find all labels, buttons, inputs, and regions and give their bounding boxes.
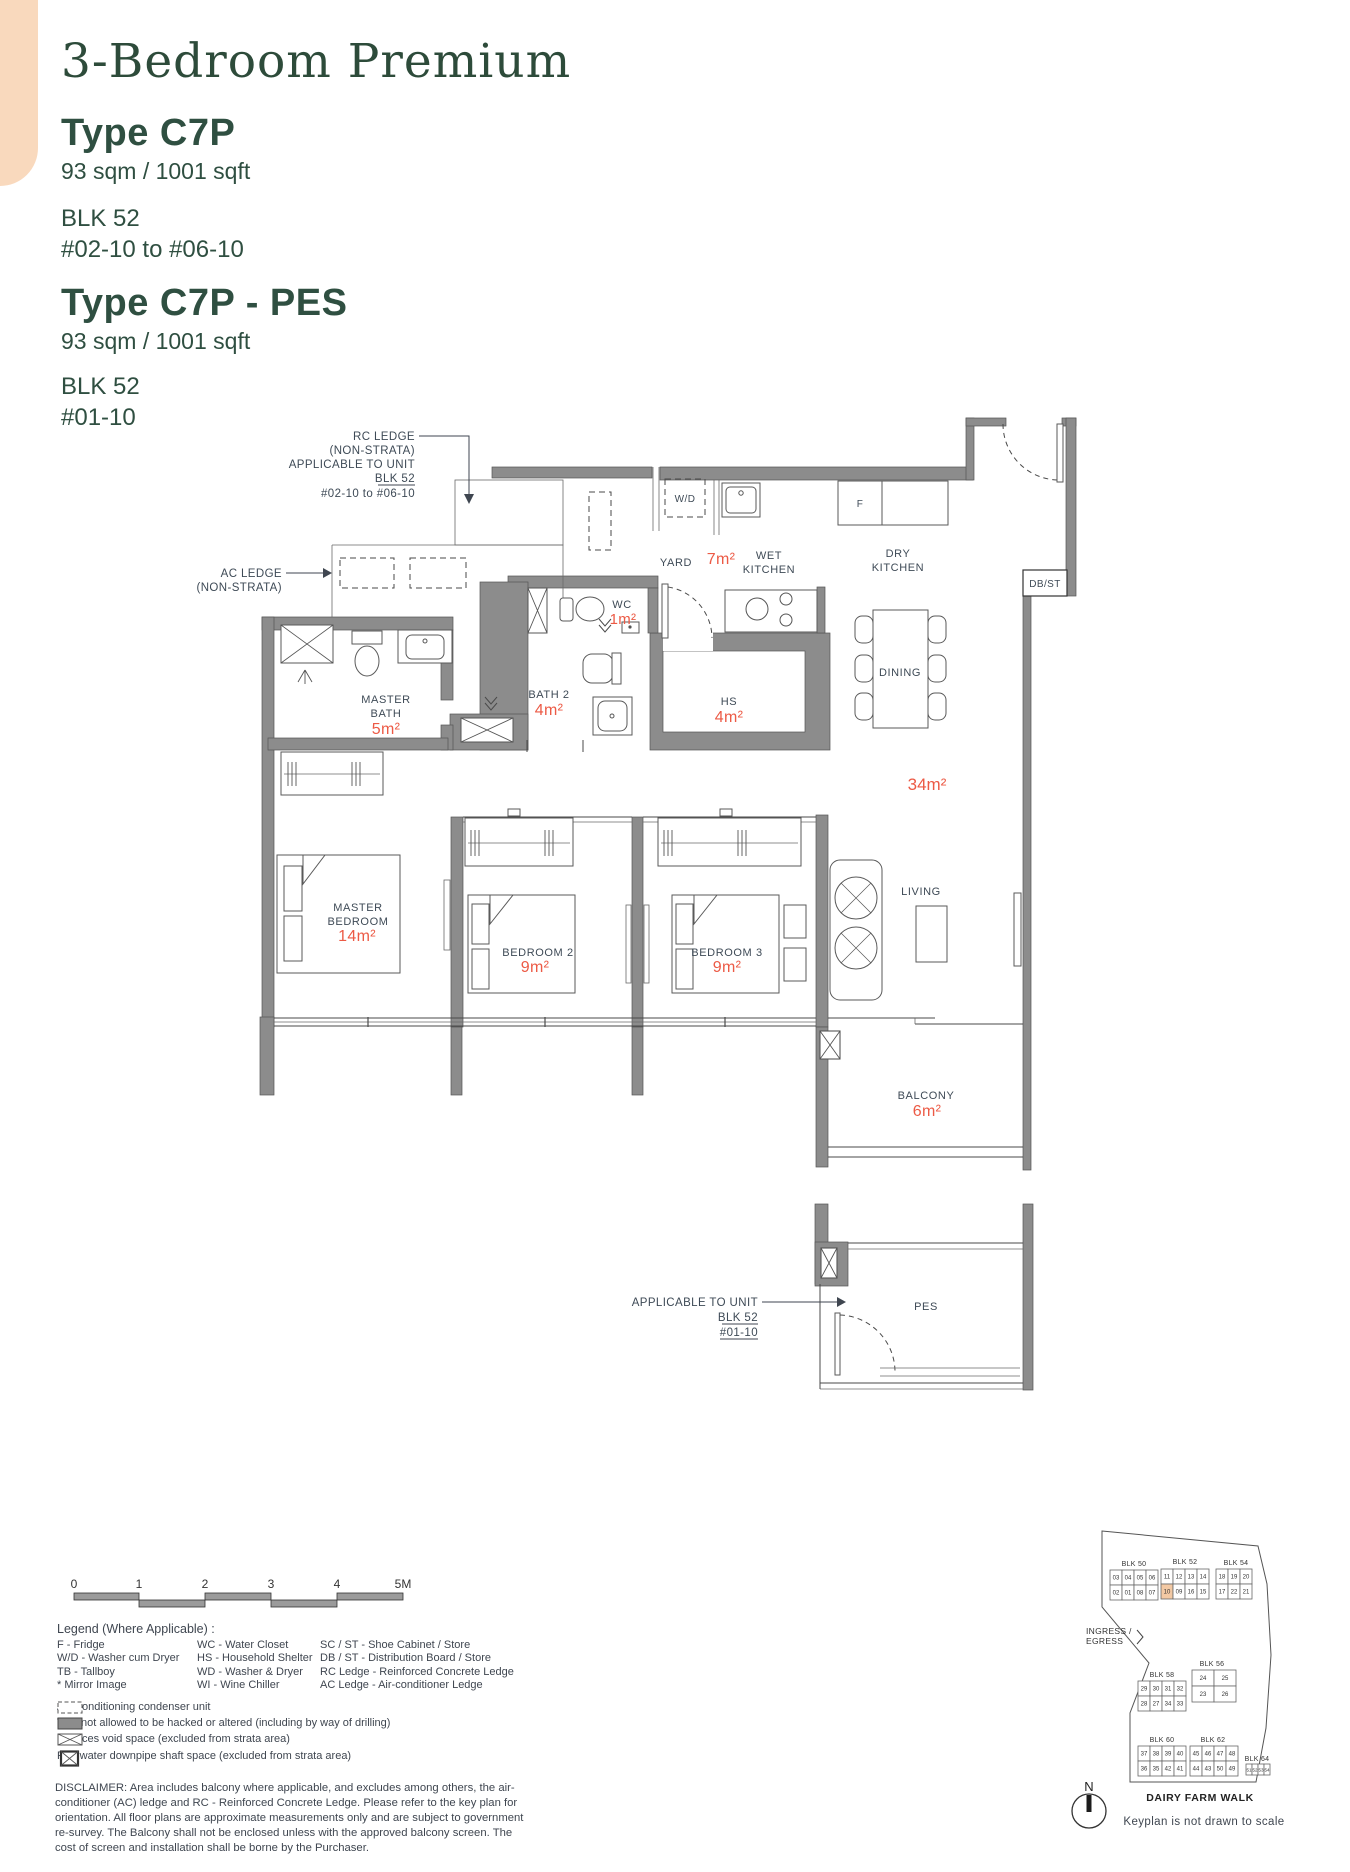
svg-text:45: 45 xyxy=(1193,1752,1200,1758)
pes-door-leaf xyxy=(835,1313,840,1375)
fridge-label: F xyxy=(857,499,864,510)
dining-chair xyxy=(928,693,946,720)
kitchen-counter xyxy=(882,481,948,525)
legend-symbol-wall: Wall not allowed to be hacked or altered… xyxy=(57,1717,390,1729)
toilet xyxy=(583,654,613,683)
toilet xyxy=(355,646,379,676)
keyplan-scale-note: Keyplan is not drawn to scale xyxy=(1123,1816,1284,1828)
svg-text:47: 47 xyxy=(1217,1752,1224,1758)
master-bedroom-label-1: MASTER xyxy=(333,902,382,914)
rainwater-shaft-icon xyxy=(57,1750,83,1767)
ac-condenser-icon xyxy=(57,1701,83,1714)
dining-chair xyxy=(855,693,873,720)
master-bath: MASTER BATH 5m² xyxy=(281,625,452,738)
svg-text:44: 44 xyxy=(1193,1767,1200,1773)
wd-label: W/D xyxy=(675,494,696,505)
master-bath-label-1: MASTER xyxy=(361,694,410,706)
dry-kitchen-label-2: KITCHEN xyxy=(872,562,924,574)
svg-text:36: 36 xyxy=(1141,1767,1148,1773)
svg-text:29: 29 xyxy=(1141,1687,1148,1693)
entry-foyer: DB/ST xyxy=(1003,424,1067,596)
svg-text:37: 37 xyxy=(1141,1752,1148,1758)
dining-chair xyxy=(855,655,873,682)
ingress-label-1: INGRESS / xyxy=(1086,1626,1132,1636)
street-label: DAIRY FARM WALK xyxy=(1146,1792,1254,1804)
ac-condenser-icon xyxy=(589,492,611,550)
ingress-label-2: EGRESS xyxy=(1086,1636,1123,1646)
dining: DINING 34m² xyxy=(855,610,947,794)
wc-label: WC xyxy=(612,599,632,611)
bedroom3-label: BEDROOM 3 xyxy=(691,947,762,959)
balcony-area: 6m² xyxy=(913,1103,942,1120)
svg-text:BLK 52: BLK 52 xyxy=(1173,1559,1198,1566)
svg-text:04: 04 xyxy=(1125,1576,1132,1582)
svg-text:(NON-STRATA): (NON-STRATA) xyxy=(196,582,282,594)
svg-text:BLK 62: BLK 62 xyxy=(1201,1737,1226,1744)
svg-text:41: 41 xyxy=(1177,1767,1184,1773)
svg-text:33: 33 xyxy=(1177,1702,1184,1708)
pillow xyxy=(284,866,302,911)
svg-text:07: 07 xyxy=(1149,1591,1156,1597)
svg-text:16: 16 xyxy=(1188,1590,1195,1596)
svg-text:4: 4 xyxy=(334,1577,341,1591)
svg-text:09: 09 xyxy=(1176,1590,1183,1596)
svg-text:52: 52 xyxy=(1252,1768,1258,1773)
svg-text:2: 2 xyxy=(202,1577,209,1591)
floorplan-drawing: DB/ST W/D YARD 7m² WET KITCHEN F xyxy=(0,0,1350,1872)
svg-text:08: 08 xyxy=(1137,1591,1144,1597)
svg-text:32: 32 xyxy=(1177,1687,1184,1693)
dining-chair xyxy=(928,616,946,643)
svg-text:02: 02 xyxy=(1113,1591,1120,1597)
svg-text:39: 39 xyxy=(1165,1752,1172,1758)
svg-text:34: 34 xyxy=(1165,1702,1172,1708)
entry-door-leaf xyxy=(1057,424,1063,482)
balcony: BALCONY 6m² xyxy=(820,1018,1023,1157)
hs-area: 4m² xyxy=(715,709,744,726)
svg-text:21: 21 xyxy=(1243,1590,1250,1596)
svg-text:15: 15 xyxy=(1200,1590,1207,1596)
coffee-table xyxy=(916,906,947,962)
svg-text:42: 42 xyxy=(1165,1767,1172,1773)
north-compass-icon: N xyxy=(1072,1779,1106,1828)
ac-condenser-icon xyxy=(410,558,466,588)
dining-chair xyxy=(855,616,873,643)
yard-area: 7m² xyxy=(707,551,736,568)
svg-text:19: 19 xyxy=(1231,1575,1238,1581)
disclaimer: DISCLAIMER: Area includes balcony where … xyxy=(55,1781,533,1856)
dry-kitchen: F DRY KITCHEN xyxy=(838,481,948,574)
bedroom2-area: 9m² xyxy=(521,959,550,976)
svg-text:26: 26 xyxy=(1222,1692,1229,1698)
bath2-area: 4m² xyxy=(535,702,564,719)
dining-chair xyxy=(928,655,946,682)
living-dining-area: 34m² xyxy=(908,775,947,794)
ac-ledge-note: AC LEDGE (NON-STRATA) xyxy=(196,568,332,594)
master-bath-area: 5m² xyxy=(372,721,401,738)
wall-icon xyxy=(57,1717,83,1730)
svg-text:49: 49 xyxy=(1229,1767,1236,1773)
svg-text:APPLICABLE TO UNIT: APPLICABLE TO UNIT xyxy=(289,459,415,471)
svg-text:22: 22 xyxy=(1231,1590,1238,1596)
wc-toilet xyxy=(576,597,604,621)
wc-toilet-tank xyxy=(560,598,573,621)
svg-text:N: N xyxy=(1084,1779,1093,1794)
dbst-label: DB/ST xyxy=(1029,579,1060,590)
tv-console xyxy=(1014,893,1021,966)
legend-column-3: SC / ST - Shoe Cabinet / Store DB / ST -… xyxy=(320,1639,514,1693)
svg-text:0: 0 xyxy=(71,1577,78,1591)
yard-wet-kitchen: W/D YARD 7m² WET KITCHEN xyxy=(660,479,817,638)
wc-room: WC 1m² xyxy=(528,588,639,633)
master-bath-label-2: BATH xyxy=(371,708,402,720)
scale-bar: 0 1 2 3 4 5M xyxy=(71,1577,412,1607)
pes: PES xyxy=(815,1204,1033,1390)
yard-label: YARD xyxy=(660,557,692,569)
svg-text:1: 1 xyxy=(136,1577,143,1591)
rc-ledge-note: RC LEDGE (NON-STRATA) APPLICABLE TO UNIT… xyxy=(289,431,474,504)
svg-text:BLK 50: BLK 50 xyxy=(1122,1561,1147,1568)
ingress-arrow-icon xyxy=(1137,1630,1143,1644)
wardrobe-knob xyxy=(508,809,520,816)
svg-text:14: 14 xyxy=(1200,1575,1207,1581)
pillow xyxy=(472,904,489,944)
services-void-icon xyxy=(57,1733,83,1746)
pes-label: PES xyxy=(914,1301,938,1313)
svg-text:#01-10: #01-10 xyxy=(720,1327,758,1339)
master-bedroom-area: 14m² xyxy=(338,928,376,945)
legend-symbol-rainwater: Rainwater downpipe shaft space (excluded… xyxy=(57,1750,351,1762)
svg-text:BLK 54: BLK 54 xyxy=(1224,1560,1249,1567)
legend-symbol-void: Services void space (excluded from strat… xyxy=(57,1733,290,1745)
bedroom3-area: 9m² xyxy=(713,959,742,976)
toilet-tank xyxy=(612,653,621,684)
svg-text:03: 03 xyxy=(1113,1576,1120,1582)
svg-text:54: 54 xyxy=(1264,1768,1270,1773)
svg-text:5M: 5M xyxy=(395,1577,412,1591)
svg-text:3: 3 xyxy=(268,1577,275,1591)
svg-text:17: 17 xyxy=(1219,1590,1226,1596)
shower-head-icon xyxy=(298,670,312,684)
svg-text:38: 38 xyxy=(1153,1752,1160,1758)
svg-text:BLK 58: BLK 58 xyxy=(1150,1672,1175,1679)
svg-text:05: 05 xyxy=(1137,1576,1144,1582)
svg-text:27: 27 xyxy=(1153,1702,1160,1708)
wardrobe xyxy=(465,818,573,866)
wardrobe-knob xyxy=(720,809,732,816)
svg-text:BLK 60: BLK 60 xyxy=(1150,1737,1175,1744)
bath2-label: BATH 2 xyxy=(528,689,569,701)
svg-text:43: 43 xyxy=(1205,1767,1212,1773)
wet-kitchen-label-1: WET xyxy=(756,550,782,562)
hs-door-leaf xyxy=(662,584,668,638)
floorplan-page: 3-Bedroom Premium Type C7P 93 sqm / 1001… xyxy=(0,0,1350,1872)
master-bedroom-label-2: BEDROOM xyxy=(327,916,388,928)
toilet-tank xyxy=(352,631,382,644)
svg-text:RC LEDGE: RC LEDGE xyxy=(353,431,415,443)
svg-text:BLK 52: BLK 52 xyxy=(375,473,415,485)
legend-column-1: F - Fridge W/D - Washer cum Dryer TB - T… xyxy=(57,1639,179,1693)
svg-text:48: 48 xyxy=(1229,1752,1236,1758)
svg-text:AC LEDGE: AC LEDGE xyxy=(221,568,282,580)
wardrobe xyxy=(658,818,801,866)
svg-text:50: 50 xyxy=(1217,1767,1224,1773)
svg-text:11: 11 xyxy=(1164,1575,1171,1581)
svg-text:46: 46 xyxy=(1205,1752,1212,1758)
pes-applicable-note: APPLICABLE TO UNIT BLK 52 #01-10 xyxy=(632,1297,846,1339)
svg-text:APPLICABLE TO UNIT: APPLICABLE TO UNIT xyxy=(632,1297,758,1309)
svg-text:BLK 64: BLK 64 xyxy=(1245,1756,1270,1763)
living-label: LIVING xyxy=(901,886,941,898)
svg-text:20: 20 xyxy=(1243,1575,1250,1581)
balcony-label: BALCONY xyxy=(898,1090,955,1102)
svg-text:13: 13 xyxy=(1188,1575,1195,1581)
svg-text:28: 28 xyxy=(1141,1702,1148,1708)
svg-text:01: 01 xyxy=(1125,1591,1132,1597)
svg-text:31: 31 xyxy=(1165,1687,1172,1693)
ac-condenser-icon xyxy=(340,558,394,588)
svg-text:51: 51 xyxy=(1246,1768,1252,1773)
svg-text:53: 53 xyxy=(1258,1768,1264,1773)
keyplan: BLK 50 0304050602010807 BLK 52 111213141… xyxy=(1072,1531,1285,1828)
bedroom2-label: BEDROOM 2 xyxy=(502,947,573,959)
svg-text:30: 30 xyxy=(1153,1687,1160,1693)
legend-title: Legend (Where Applicable) : xyxy=(57,1622,215,1636)
svg-text:BLK 52: BLK 52 xyxy=(718,1312,758,1324)
svg-text:#02-10 to #06-10: #02-10 to #06-10 xyxy=(321,488,415,500)
wc-area: 1m² xyxy=(610,611,637,628)
svg-text:10: 10 xyxy=(1164,1590,1171,1596)
bedside-table xyxy=(784,948,806,981)
dry-kitchen-label-1: DRY xyxy=(886,548,911,560)
bedside-table xyxy=(784,905,806,938)
svg-text:23: 23 xyxy=(1200,1692,1207,1698)
svg-text:35: 35 xyxy=(1153,1767,1160,1773)
dining-label: DINING xyxy=(879,667,921,679)
hs-label: HS xyxy=(721,696,737,708)
pillow xyxy=(472,949,489,989)
svg-text:25: 25 xyxy=(1222,1676,1229,1682)
window-band xyxy=(274,1017,816,1027)
pillow xyxy=(284,916,302,961)
bedroom-3: BEDROOM 3 9m² xyxy=(626,809,816,993)
wet-kitchen-label-2: KITCHEN xyxy=(743,564,795,576)
legend-symbol-ac: Air-Conditioning condenser unit xyxy=(57,1701,210,1713)
bedroom-2: BEDROOM 2 9m² xyxy=(444,809,632,993)
svg-text:(NON-STRATA): (NON-STRATA) xyxy=(329,445,415,457)
svg-text:40: 40 xyxy=(1177,1752,1184,1758)
legend-column-2: WC - Water Closet HS - Household Shelter… xyxy=(197,1639,313,1693)
stove-counter xyxy=(725,590,817,632)
svg-text:BLK 56: BLK 56 xyxy=(1200,1661,1225,1668)
svg-text:24: 24 xyxy=(1200,1676,1207,1682)
svg-text:06: 06 xyxy=(1149,1576,1156,1582)
svg-text:12: 12 xyxy=(1176,1575,1183,1581)
master-bedroom: MASTER BEDROOM 14m² xyxy=(277,752,400,973)
svg-text:18: 18 xyxy=(1219,1575,1226,1581)
pillow xyxy=(676,904,693,944)
living: LIVING xyxy=(830,860,1021,1000)
